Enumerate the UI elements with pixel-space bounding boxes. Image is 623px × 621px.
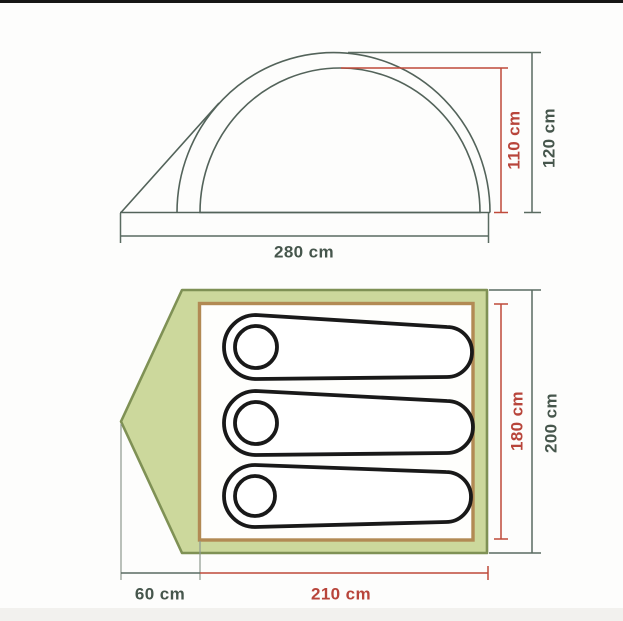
screenshot-root: 110 cm 120 cm 280 cm — [0, 0, 623, 621]
sleeping-bag-outline — [224, 391, 473, 455]
top-view: 180 cm 200 cm 60 cm 210 cm — [121, 290, 561, 604]
base-width-dimension: 280 cm — [121, 213, 489, 262]
sleeping-bag-2 — [224, 391, 473, 455]
inner-length-label: 180 cm — [508, 391, 527, 451]
tent-dimension-diagram: 110 cm 120 cm 280 cm — [0, 0, 623, 621]
inner-height-dimension: 110 cm — [341, 68, 524, 213]
sleeping-bag-1 — [224, 315, 472, 379]
side-view: 110 cm 120 cm 280 cm — [120, 53, 559, 262]
inner-length-dimension: 180 cm — [494, 304, 527, 539]
outer-height-label: 120 cm — [540, 108, 559, 168]
sleeping-bag-outline — [224, 315, 472, 379]
tent-inner-body — [200, 68, 480, 212]
outer-height-dimension: 120 cm — [348, 53, 559, 213]
base-width-label: 280 cm — [274, 243, 334, 262]
inner-height-label: 110 cm — [505, 110, 524, 169]
sleeping-bag-3 — [224, 465, 471, 527]
tent-vestibule-guyline — [121, 103, 219, 213]
sleeping-bag-outline — [224, 465, 471, 527]
floor-length-label: 210 cm — [311, 585, 371, 604]
outer-length-label: 200 cm — [542, 393, 561, 453]
vestibule-depth-label: 60 cm — [135, 585, 185, 604]
